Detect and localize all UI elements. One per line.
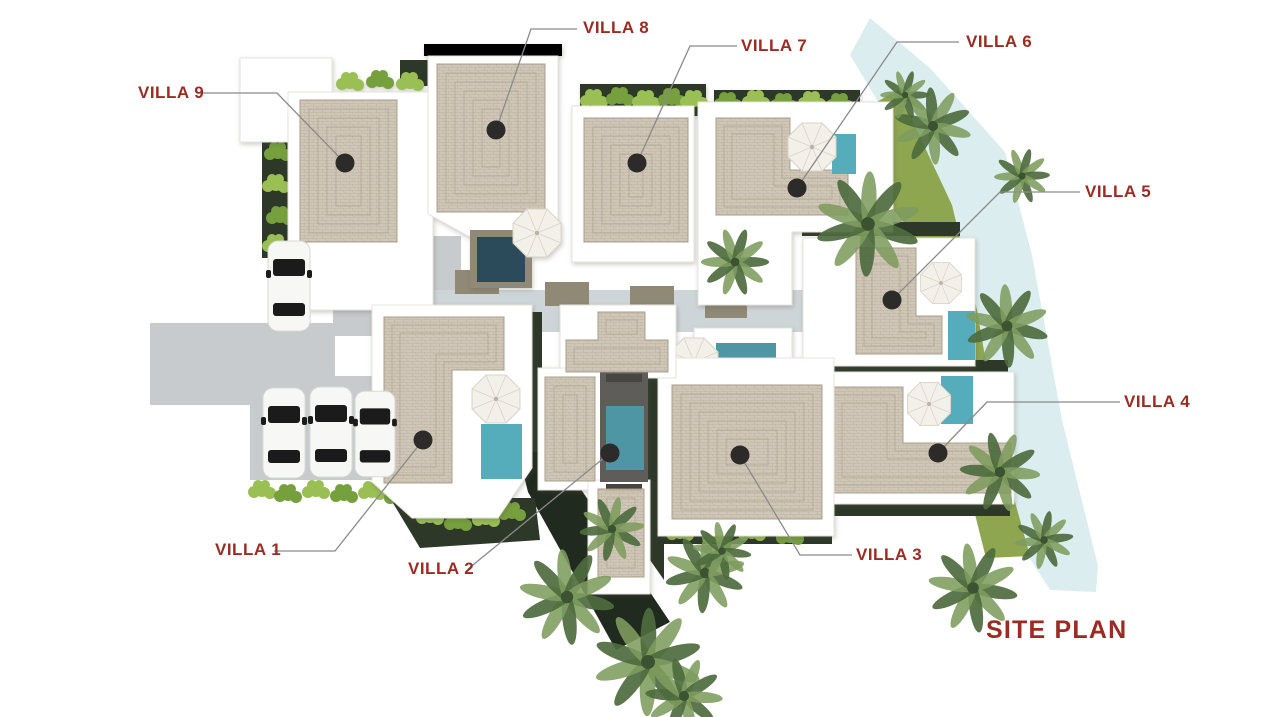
villa-8-label: VILLA 8	[583, 18, 649, 38]
walkway-umbrella	[513, 209, 561, 257]
villa-9-label: VILLA 9	[138, 83, 204, 103]
car	[266, 241, 312, 331]
villa-3-label: VILLA 3	[856, 545, 922, 565]
villa-1-pool	[481, 424, 522, 479]
villa-7-building	[572, 84, 708, 262]
villa-1-marker-dot	[414, 431, 433, 450]
villa-5-marker-dot	[883, 291, 902, 310]
villa-7-marker-dot	[628, 154, 647, 173]
villa-6-marker-dot	[788, 179, 807, 198]
car	[308, 387, 354, 477]
boundary-wall	[424, 44, 562, 56]
site-plan-page: VILLA 9 VILLA 8 VILLA 7 VILLA 6 VILLA 5 …	[0, 0, 1275, 717]
bush-row-villa9-top	[336, 70, 424, 91]
villa-6-label: VILLA 6	[966, 32, 1032, 52]
villa-1-label: VILLA 1	[215, 540, 281, 560]
villa-2-marker-dot	[601, 444, 620, 463]
villa-2-label: VILLA 2	[408, 559, 474, 579]
villa-7-label: VILLA 7	[741, 36, 807, 56]
site-plan-title: SITE PLAN	[986, 616, 1127, 645]
villa-5-umbrella	[921, 263, 962, 304]
site-plan-rendering	[0, 0, 1275, 717]
villa-8-marker-dot	[487, 121, 506, 140]
car	[261, 388, 307, 478]
car	[353, 391, 397, 477]
villa-3-marker-dot	[731, 446, 750, 465]
villa-3-building	[658, 328, 834, 536]
villa-6-umbrella	[788, 123, 836, 171]
villa-9-marker-dot	[336, 154, 355, 173]
villa-4-marker-dot	[929, 444, 948, 463]
villa-4-umbrella	[907, 382, 950, 425]
villa-2-roof-west	[545, 377, 595, 481]
villa-1-building	[372, 305, 532, 518]
villa-5-label: VILLA 5	[1085, 182, 1151, 202]
villa-4-label: VILLA 4	[1124, 392, 1190, 412]
villa-7-roof	[584, 118, 688, 242]
villa-1-umbrella	[472, 375, 520, 423]
